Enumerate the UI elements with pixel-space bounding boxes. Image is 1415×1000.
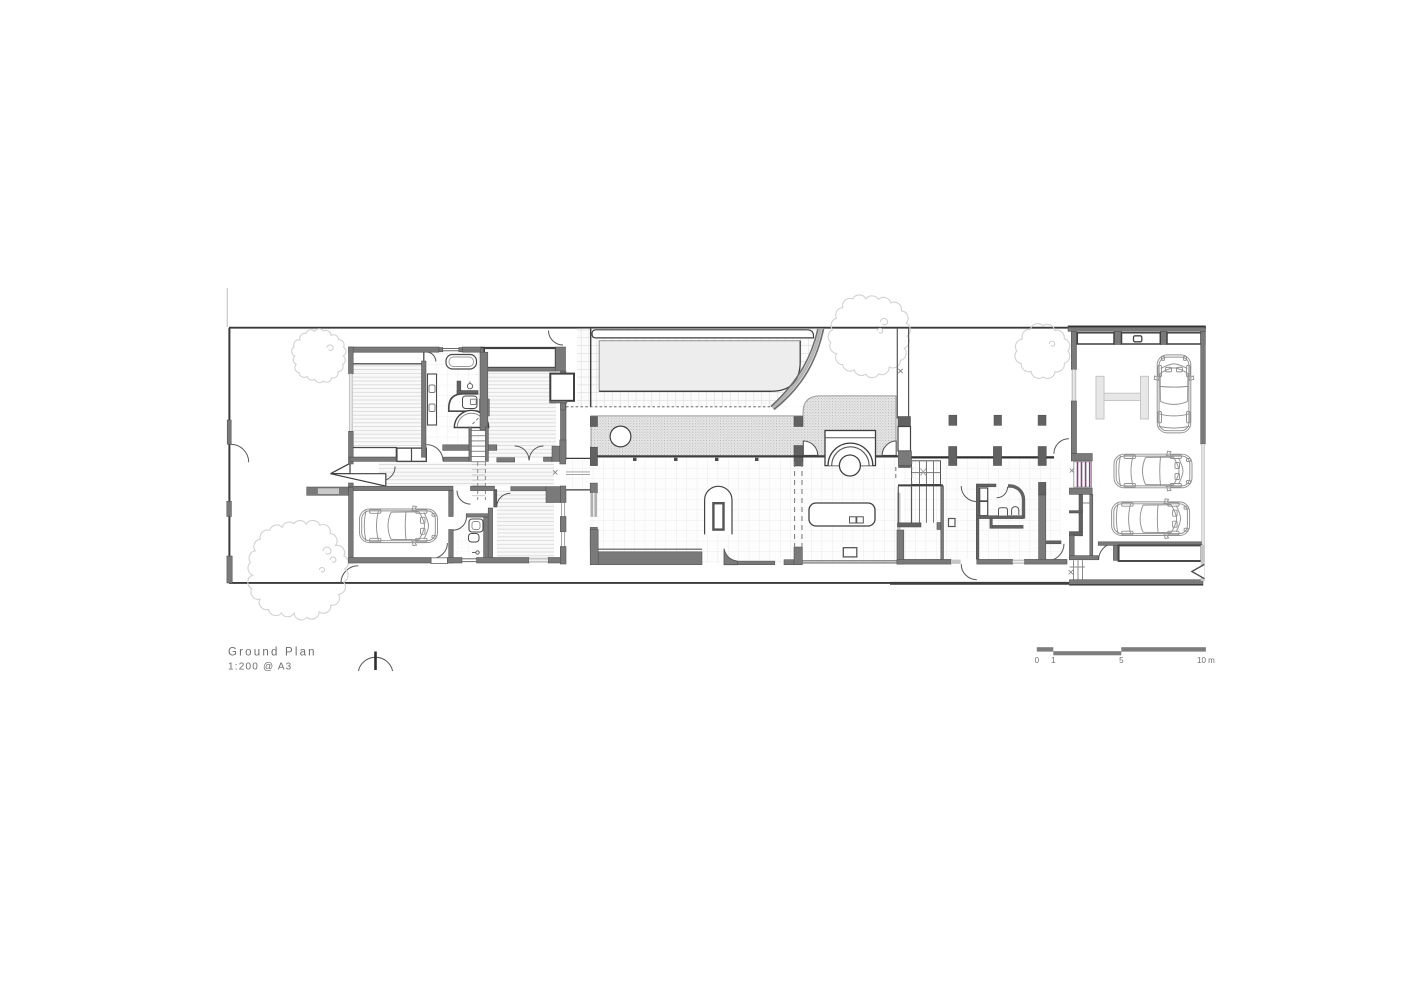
svg-text:1: 1 xyxy=(1051,656,1056,665)
svg-text:1:200 @ A3: 1:200 @ A3 xyxy=(228,662,292,673)
svg-text:Ground Plan: Ground Plan xyxy=(228,647,317,659)
svg-text:10 m: 10 m xyxy=(1197,656,1215,665)
svg-text:5: 5 xyxy=(1119,656,1124,665)
svg-text:0: 0 xyxy=(1035,656,1040,665)
